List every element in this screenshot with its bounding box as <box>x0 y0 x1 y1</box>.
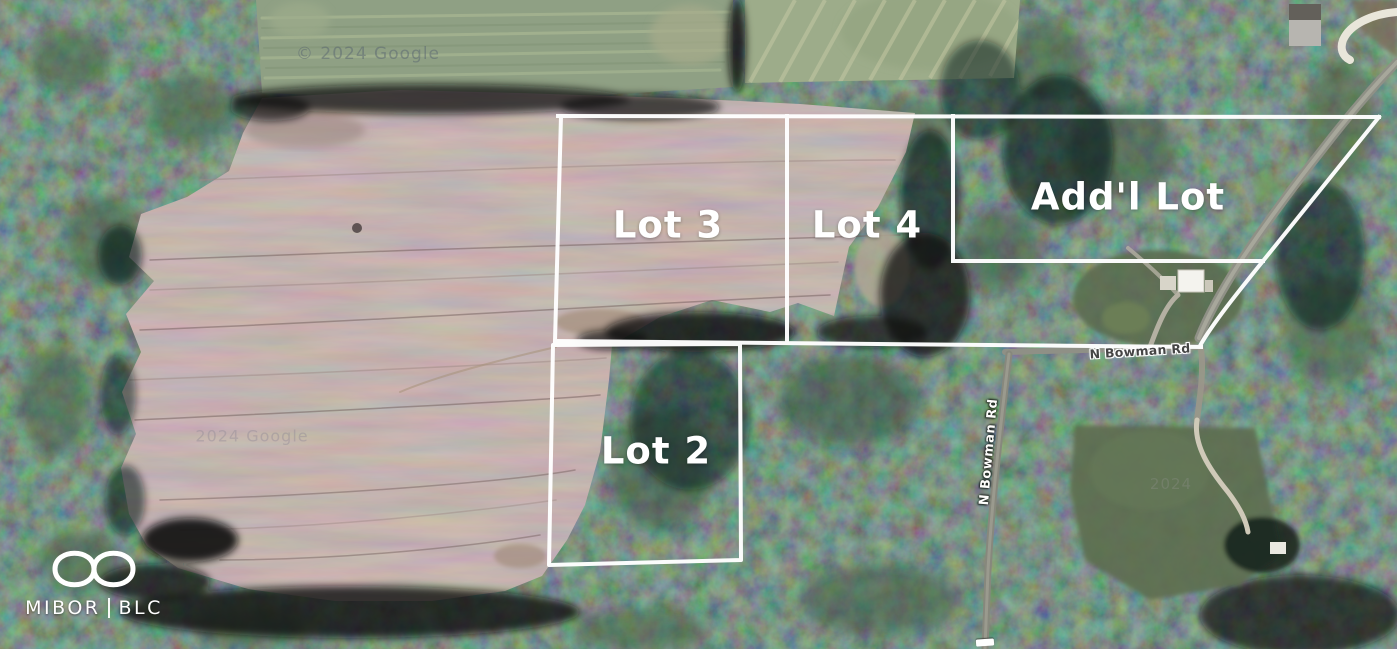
lot-4-label: Lot 4 <box>812 207 922 244</box>
house-addl-lot <box>1178 270 1204 292</box>
house-bottom-right <box>1270 542 1286 554</box>
logo-divider <box>108 598 110 618</box>
mibor-blc-logo: MIBOR BLC <box>28 546 160 619</box>
logo-text-right: BLC <box>118 597 162 619</box>
logo-text-left: MIBOR <box>25 597 100 619</box>
boundary-north-line <box>558 116 1379 117</box>
lot-2-label: Lot 2 <box>601 433 711 470</box>
infinity-icon <box>51 546 137 592</box>
aerial-imagery <box>0 0 1397 649</box>
satellite-parcel-map: Lot 3 Lot 4 Add'l Lot Lot 2 N Bowman Rd … <box>0 0 1397 649</box>
addl-lot-label: Add'l Lot <box>1031 179 1225 216</box>
google-watermark-top: © 2024 Google <box>296 44 440 64</box>
road-label-fragment <box>976 638 994 646</box>
google-watermark-field: 2024 Google <box>195 427 308 446</box>
logo-text: MIBOR BLC <box>25 597 163 619</box>
lot-3-label: Lot 3 <box>613 207 723 244</box>
google-watermark-clearing: 2024 <box>1150 475 1192 493</box>
